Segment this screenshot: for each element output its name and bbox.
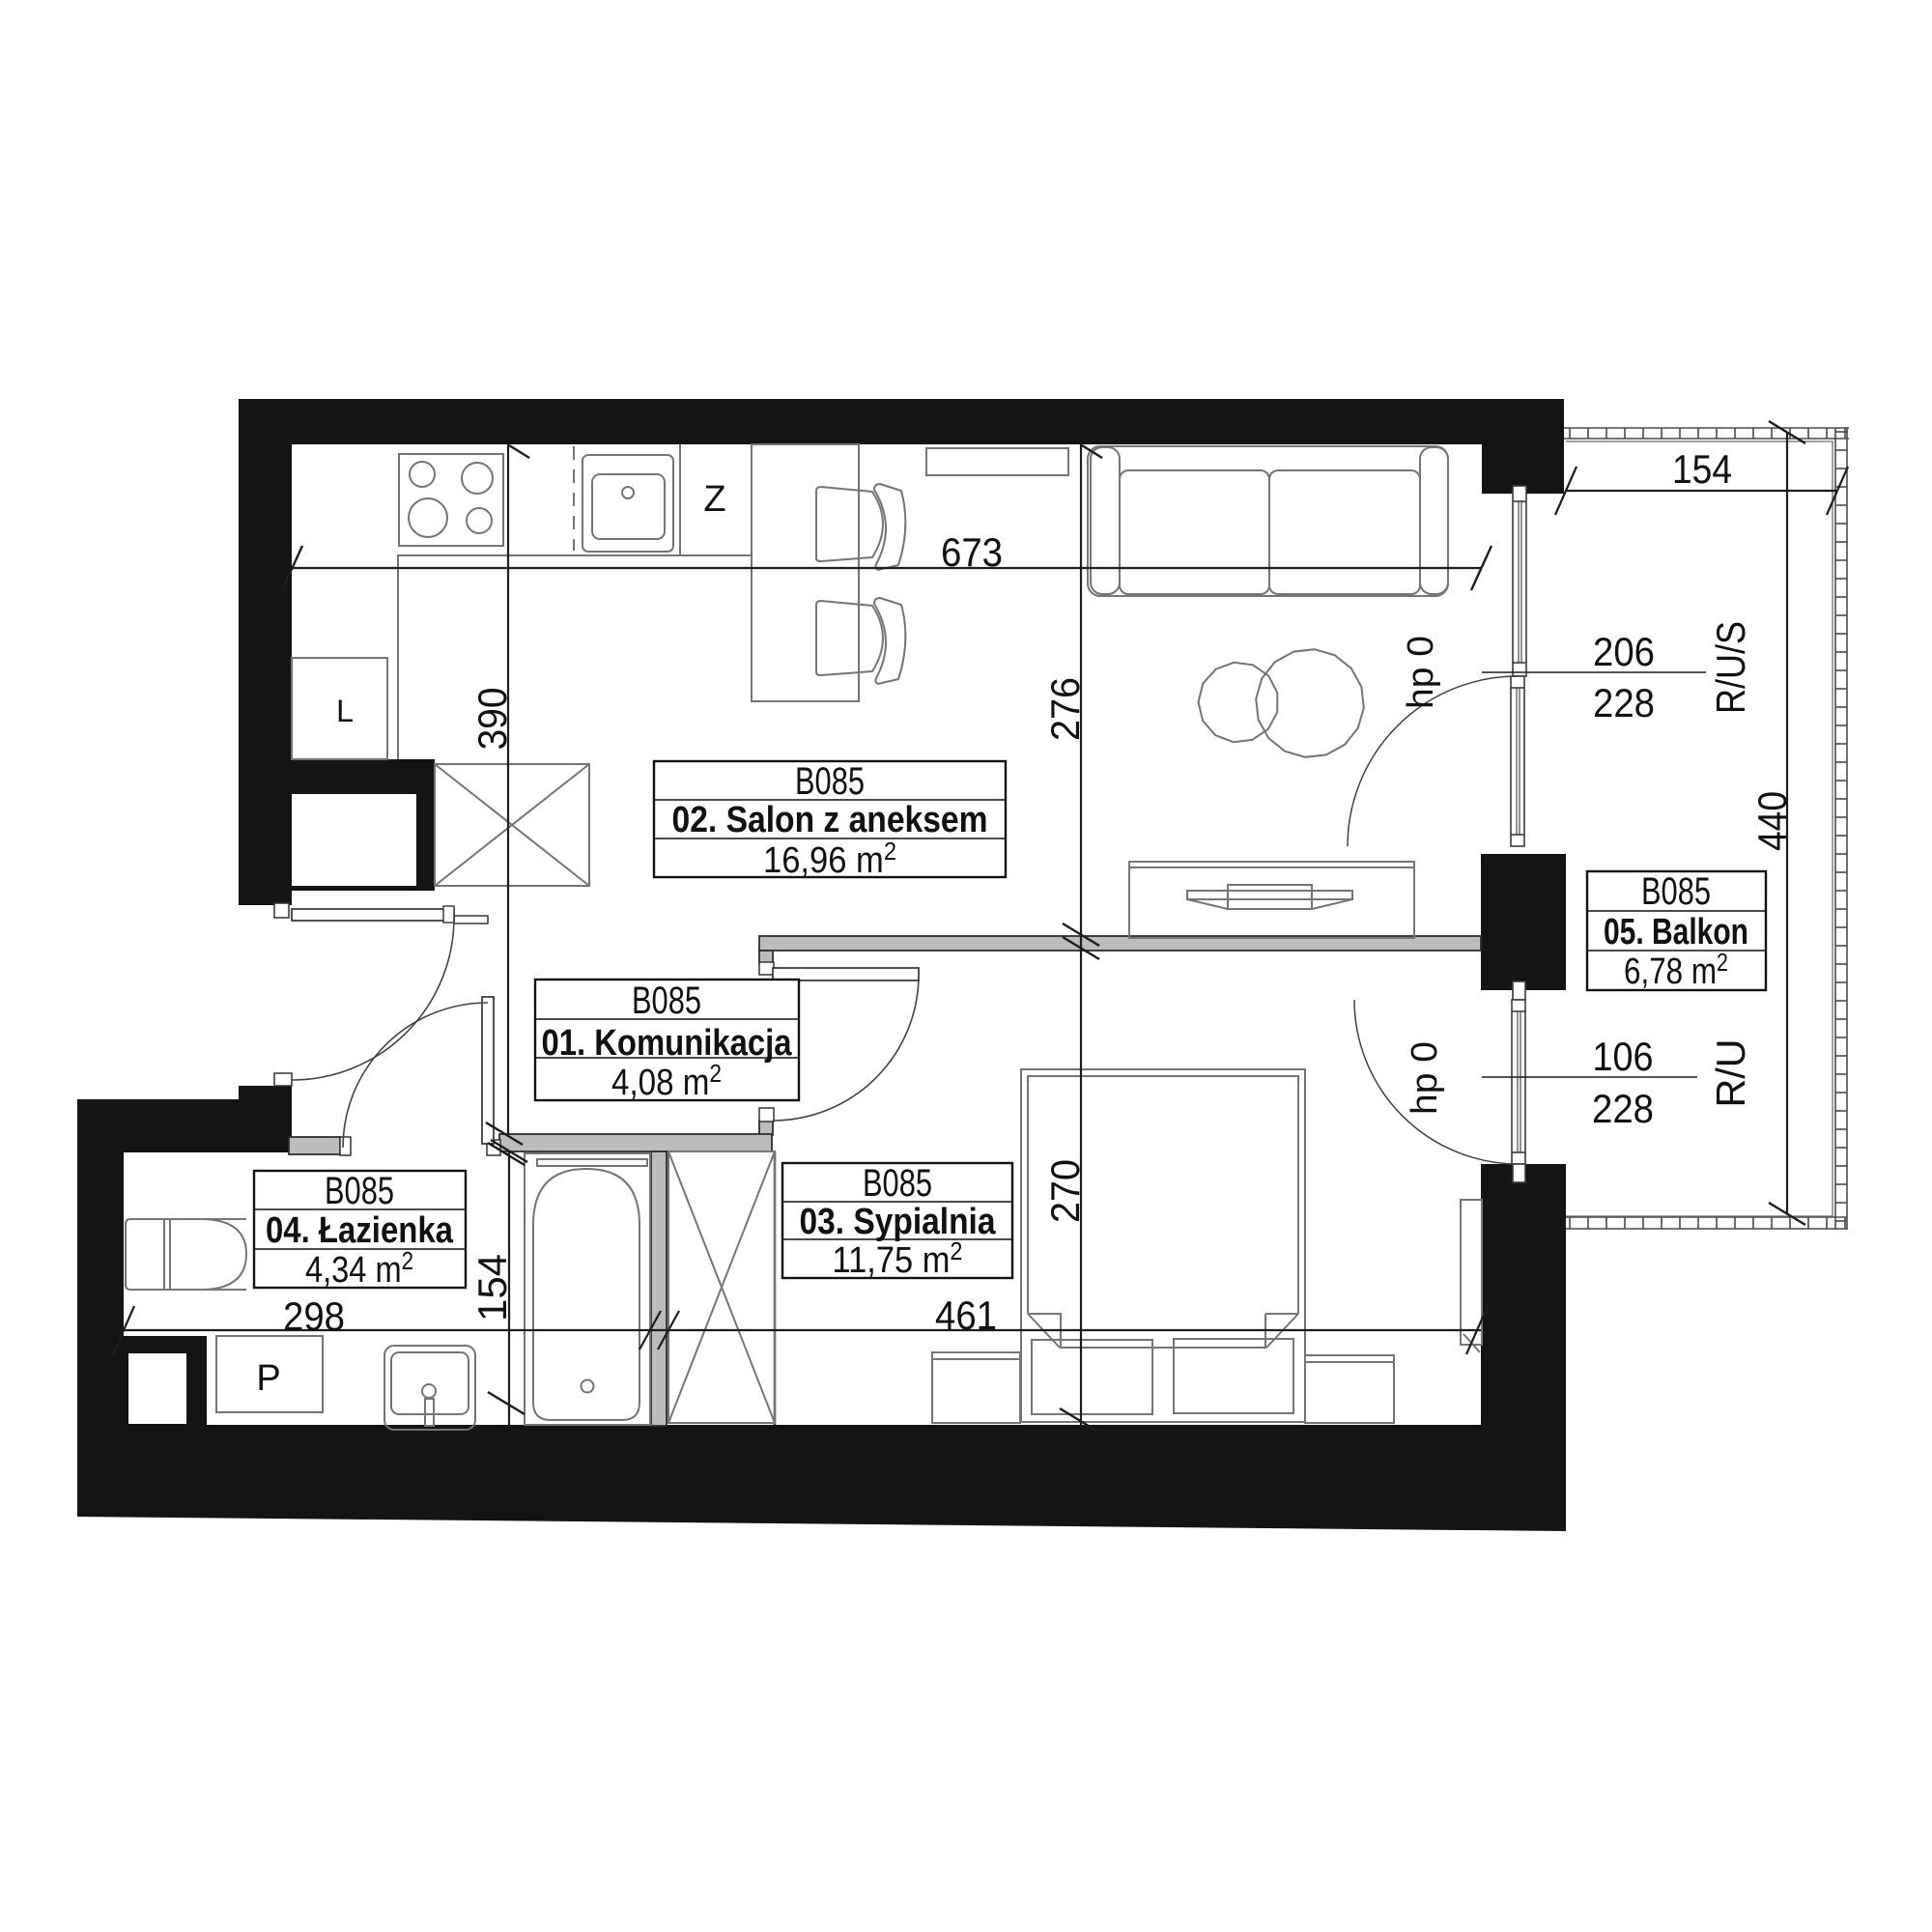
svg-text:154: 154 — [469, 1254, 515, 1321]
svg-text:B085: B085 — [325, 1170, 394, 1212]
svg-text:B085: B085 — [863, 1162, 932, 1205]
svg-text:11,75 m2: 11,75 m2 — [833, 1236, 963, 1281]
svg-text:106: 106 — [1593, 1034, 1654, 1079]
svg-text:R/U: R/U — [1708, 1039, 1753, 1108]
svg-text:P: P — [256, 1358, 280, 1399]
svg-text:02. Salon z aneksem: 02. Salon z aneksem — [672, 800, 988, 840]
svg-text:hp 0: hp 0 — [1405, 1041, 1445, 1115]
svg-text:206: 206 — [1593, 629, 1655, 674]
svg-text:228: 228 — [1592, 1086, 1654, 1131]
svg-text:298: 298 — [283, 1293, 345, 1339]
svg-text:6,78 m2: 6,78 m2 — [1624, 948, 1728, 992]
svg-text:L: L — [336, 694, 354, 728]
svg-text:390: 390 — [469, 688, 515, 751]
svg-text:228: 228 — [1593, 680, 1655, 725]
svg-text:276: 276 — [1042, 677, 1088, 741]
svg-text:B085: B085 — [632, 980, 701, 1022]
svg-text:461: 461 — [935, 1293, 997, 1338]
svg-text:440: 440 — [1749, 791, 1795, 851]
svg-text:04. Łazienka: 04. Łazienka — [266, 1210, 454, 1251]
svg-text:R/U/S: R/U/S — [1708, 621, 1753, 714]
svg-text:4,34 m2: 4,34 m2 — [305, 1246, 413, 1291]
svg-text:05. Balkon: 05. Balkon — [1604, 912, 1748, 952]
svg-text:Z: Z — [703, 479, 725, 520]
svg-text:4,08 m2: 4,08 m2 — [611, 1059, 722, 1103]
svg-text:hp 0: hp 0 — [1401, 636, 1441, 709]
svg-text:673: 673 — [941, 529, 1003, 575]
svg-text:B085: B085 — [1641, 870, 1711, 913]
svg-text:03. Sypialnia: 03. Sypialnia — [800, 1202, 997, 1242]
svg-text:154: 154 — [1672, 446, 1732, 492]
svg-text:B085: B085 — [795, 760, 865, 803]
svg-text:270: 270 — [1042, 1159, 1088, 1223]
svg-text:16,96 m2: 16,96 m2 — [763, 837, 896, 881]
svg-text:01. Komunikacja: 01. Komunikacja — [542, 1023, 793, 1064]
